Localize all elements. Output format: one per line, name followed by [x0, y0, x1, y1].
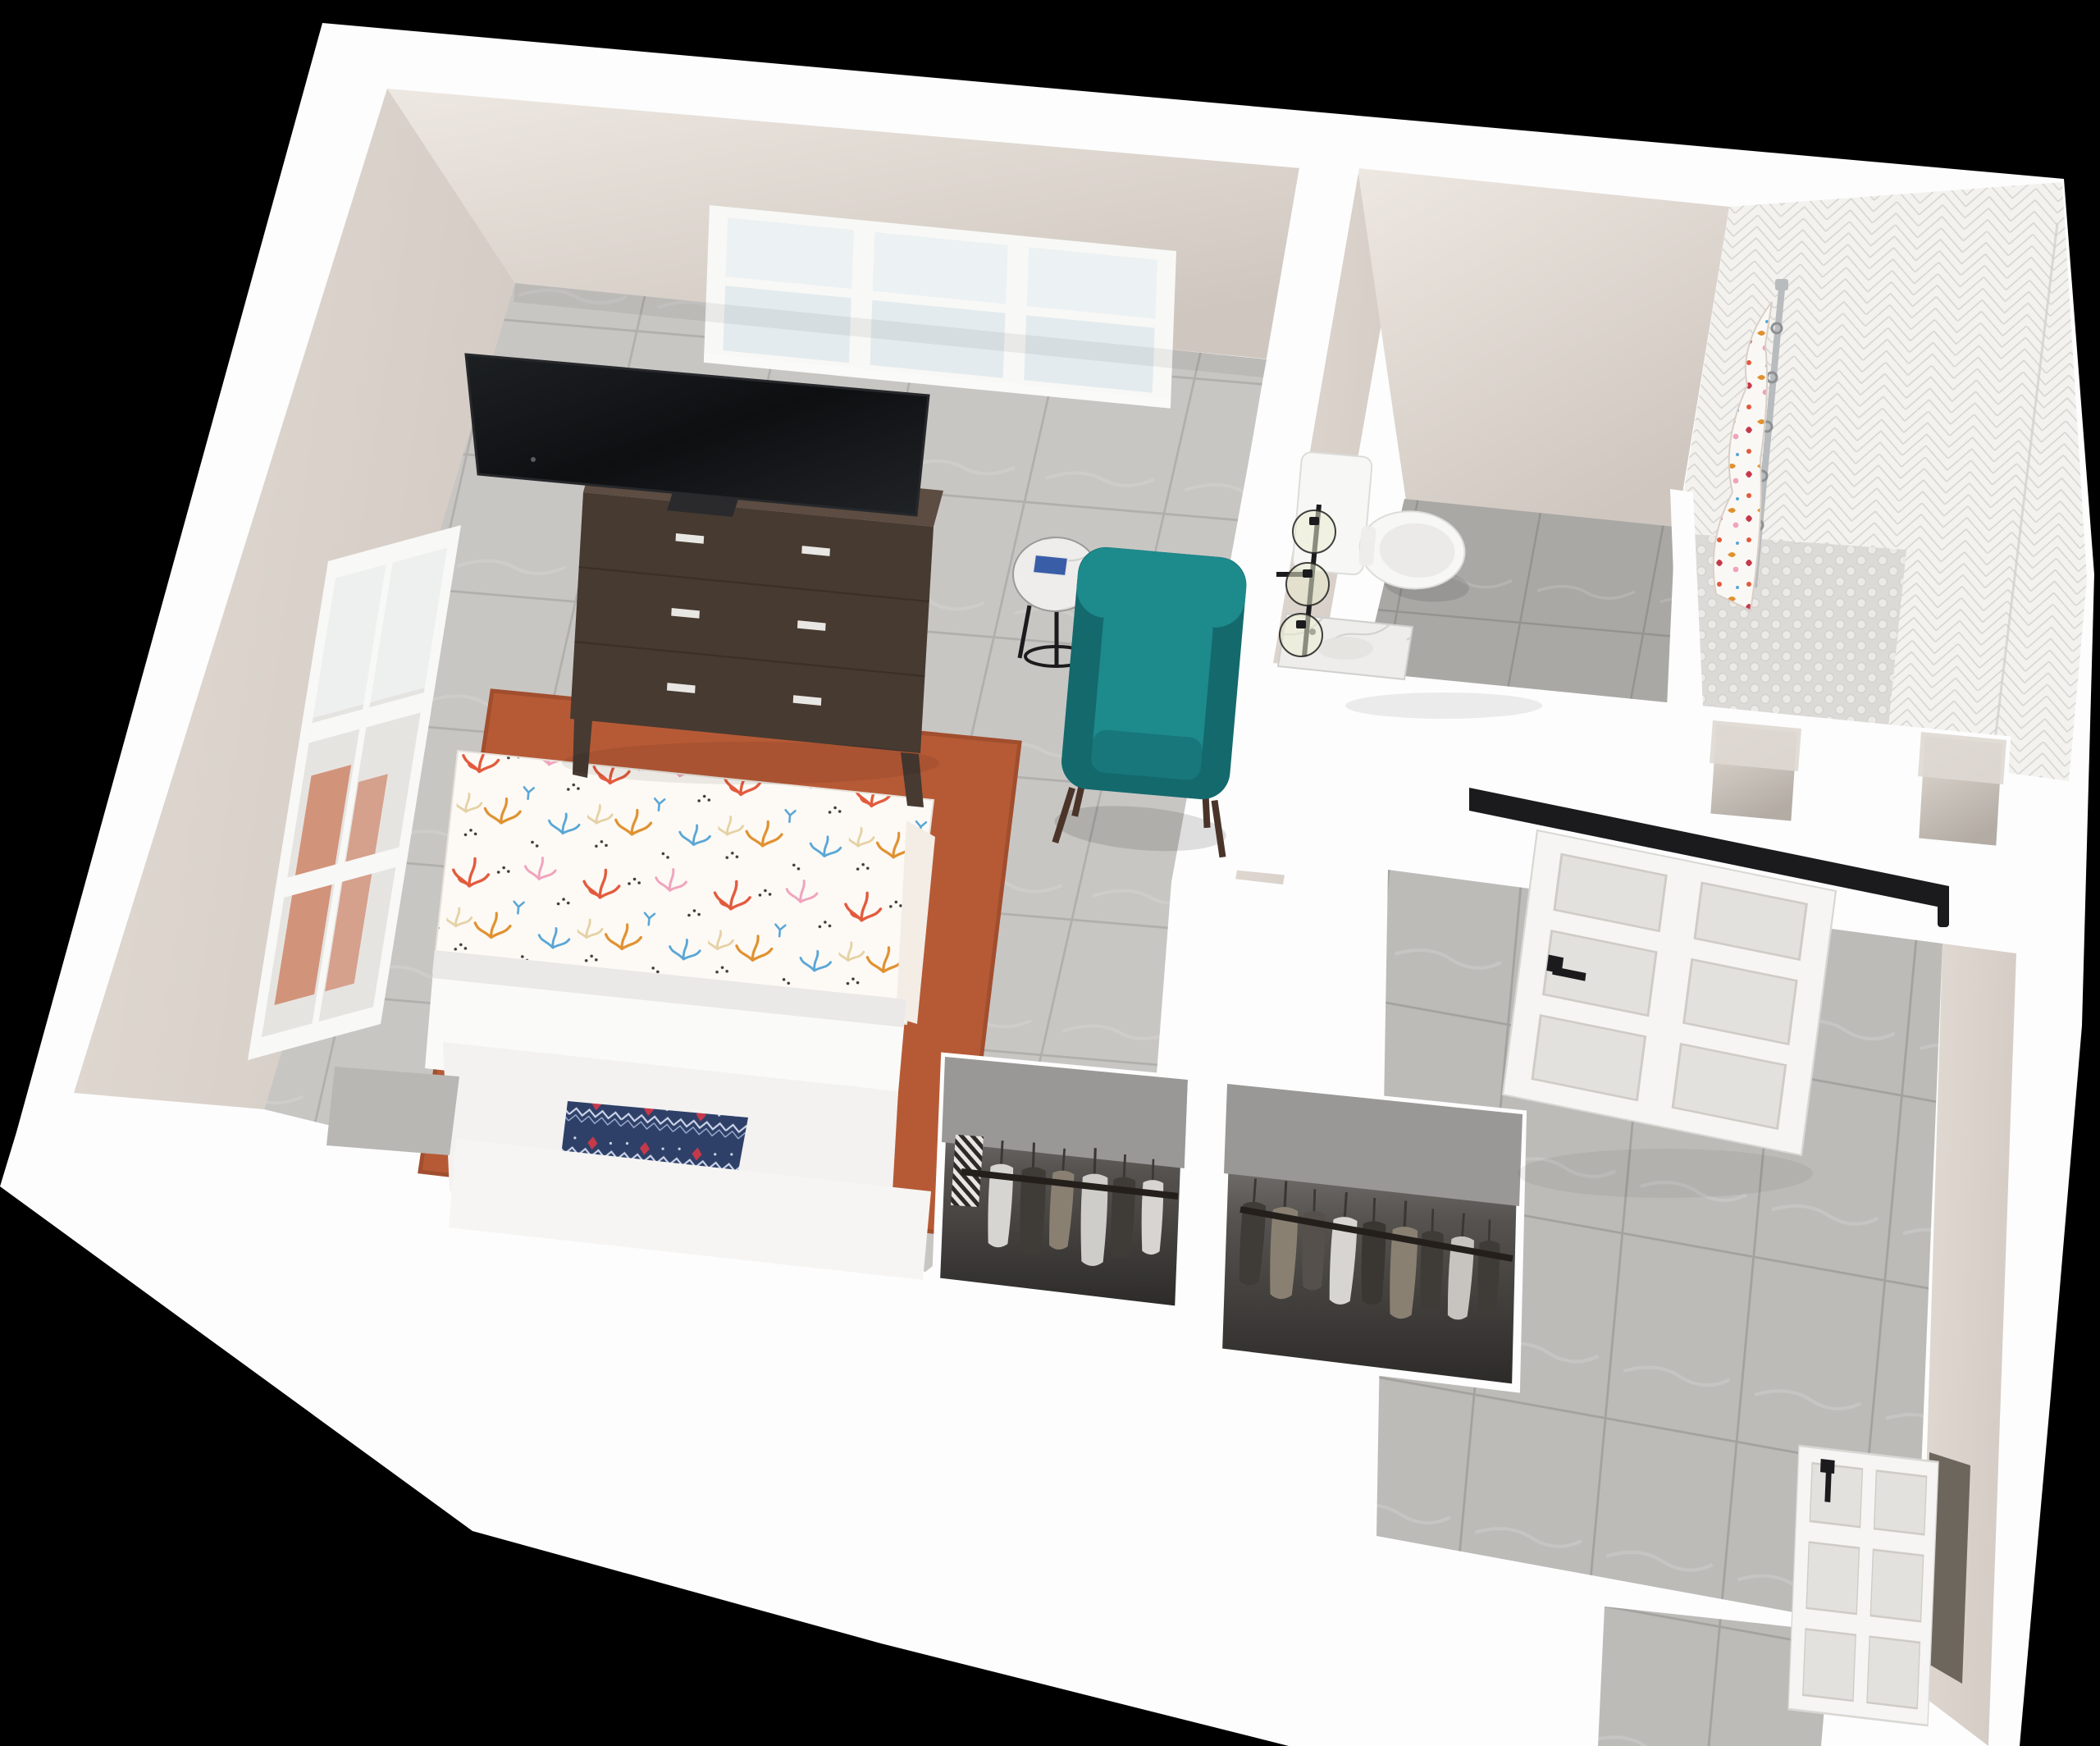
storage-niche-2 [1915, 732, 2006, 850]
storage-niche-1 [1706, 720, 1801, 825]
closet-section-2 [1218, 1084, 1522, 1388]
floor-plan-render [0, 0, 2100, 1746]
bathroom-north-wall-face [1358, 168, 1729, 528]
entry-door [1788, 1446, 1938, 1725]
gray-pillow [326, 1067, 459, 1155]
book [1033, 555, 1068, 576]
closet-section-1 [936, 1057, 1188, 1310]
